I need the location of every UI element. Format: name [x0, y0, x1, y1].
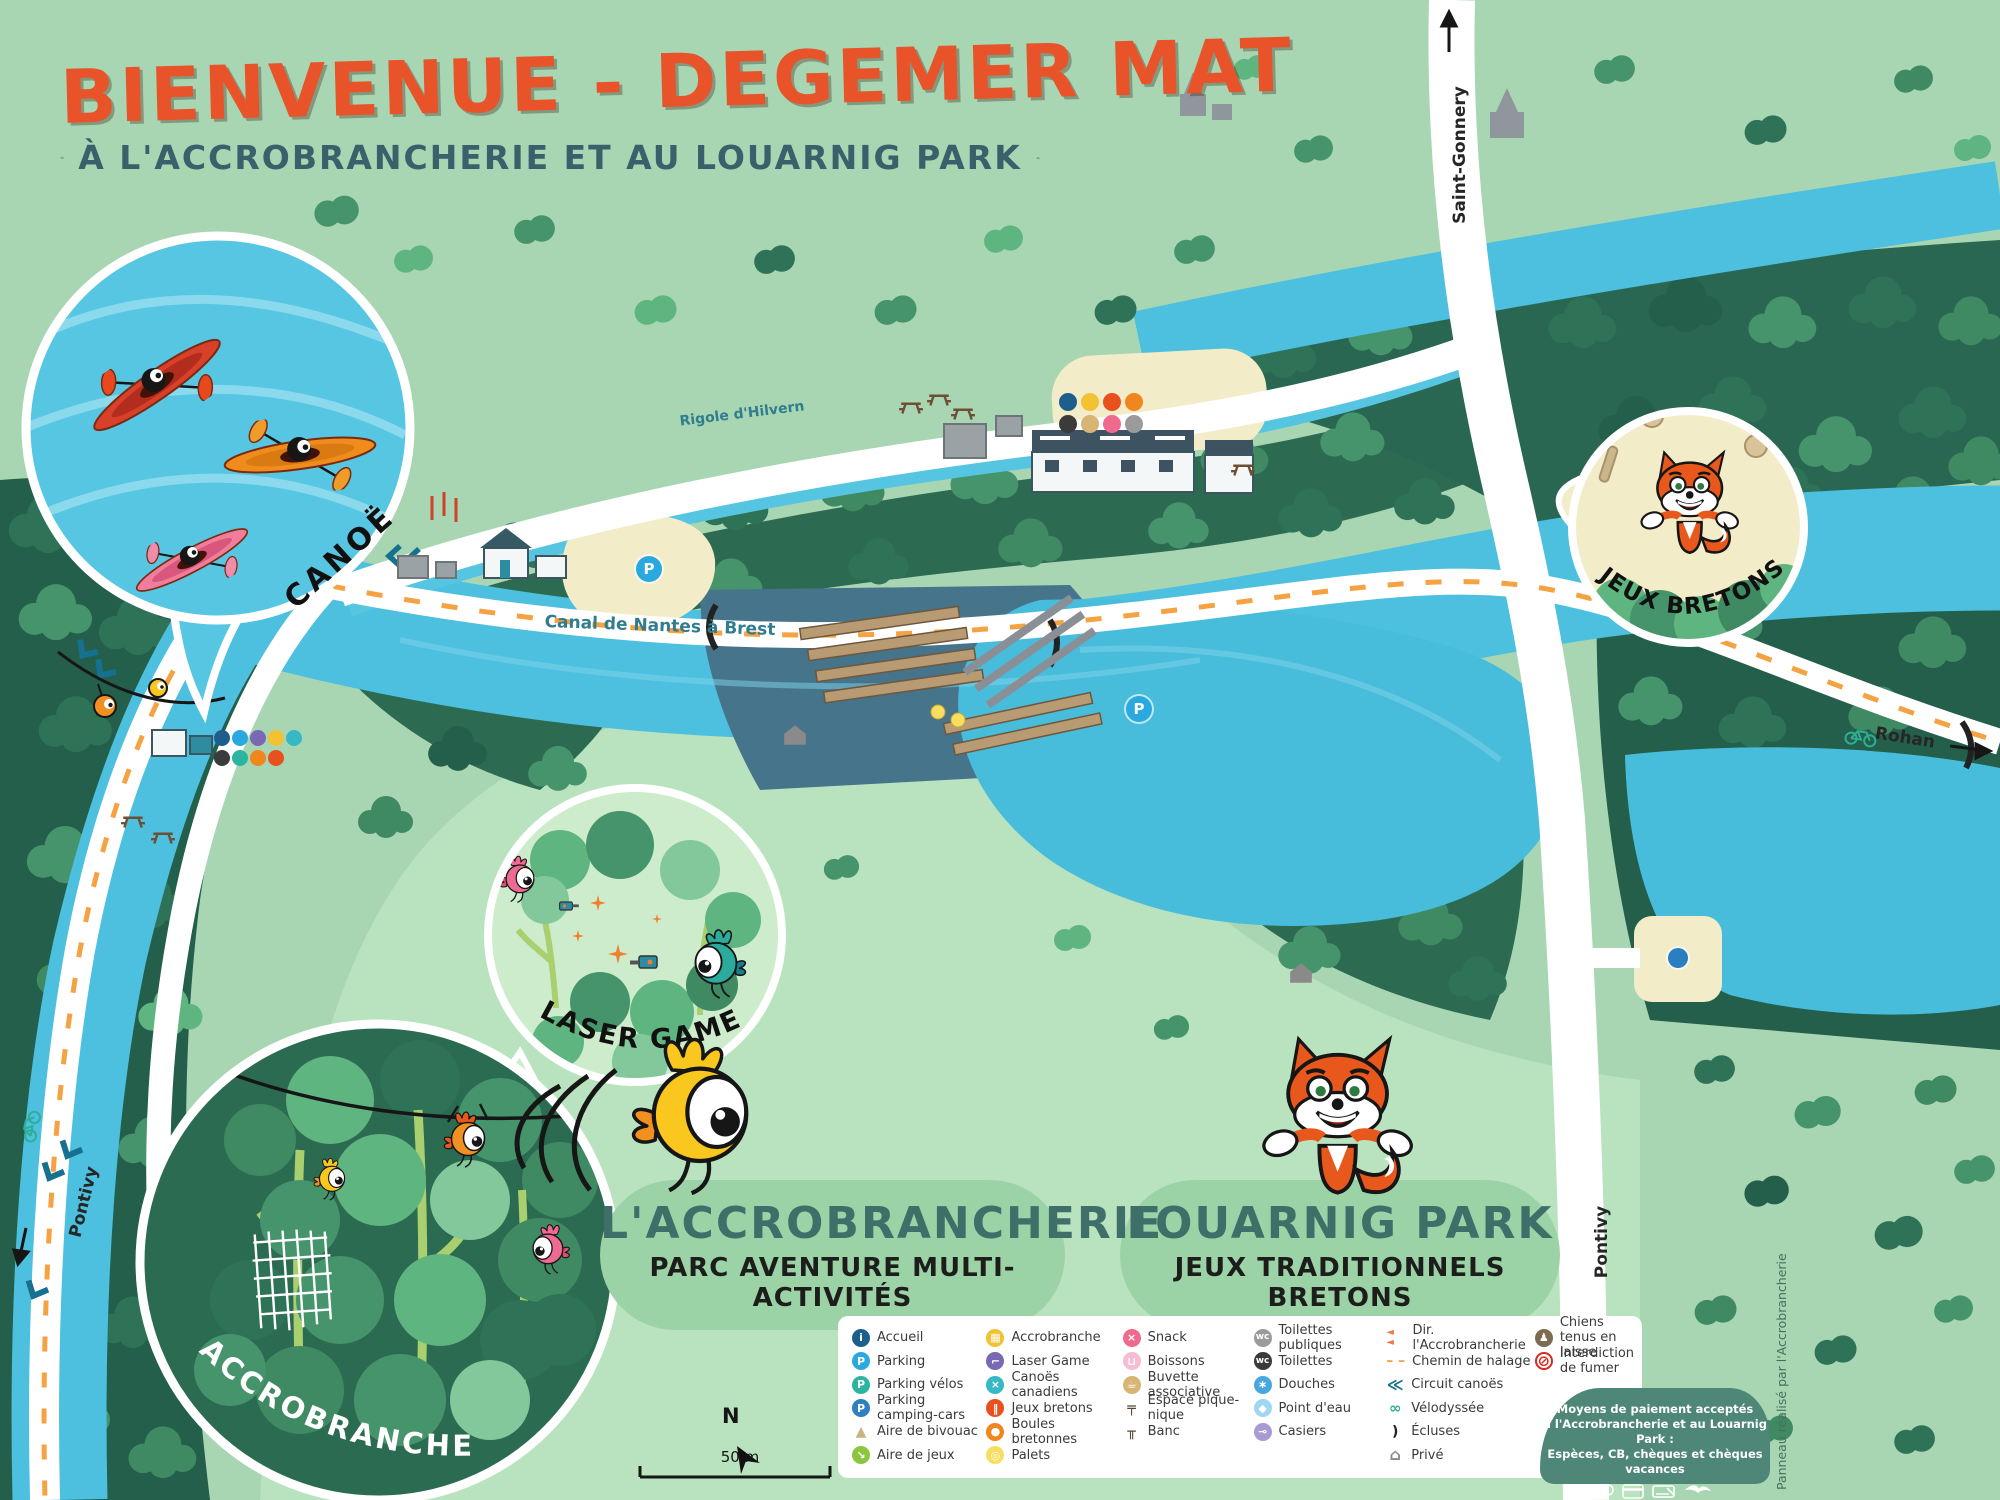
legend-item: ╤Espace pique-nique: [1123, 1397, 1254, 1421]
legend-label: Palets: [1011, 1448, 1050, 1463]
bike-parking-icon: P: [852, 1376, 870, 1394]
legend-item: PParking camping-cars: [852, 1397, 986, 1421]
towpath-dash-icon: – –: [1386, 1352, 1405, 1370]
legend-item: ◆Point d'eau: [1254, 1397, 1387, 1421]
legend-label: Accrobranche: [1011, 1330, 1100, 1345]
legend-item: ×Snack: [1123, 1326, 1254, 1350]
legend-column: ▦Accrobranche ⌐Laser Game ×Canoës canadi…: [986, 1326, 1122, 1470]
legend-item: ∗Douches: [1254, 1373, 1387, 1397]
dog-leash-icon: ♟: [1535, 1329, 1553, 1347]
parking-marker: P: [636, 556, 662, 582]
legend-item: ⊸Casiers: [1254, 1420, 1387, 1444]
payment-line: Espèces, CB, chèques et chèques vacances: [1540, 1447, 1770, 1477]
payment-line: Moyens de paiement acceptés: [1540, 1402, 1770, 1417]
road-label-saint-gonnery: Saint-Gonnery: [1450, 75, 1470, 235]
legend-item: ◎Palets: [986, 1444, 1122, 1468]
boules-icon: ●: [986, 1423, 1004, 1441]
playground-icon: ↘: [852, 1446, 870, 1464]
legend-item: wcToilettes: [1254, 1350, 1387, 1374]
legend-label: Parking: [877, 1354, 925, 1369]
wc-public-icon: wc: [1254, 1329, 1272, 1347]
legend-label: Privé: [1411, 1448, 1443, 1463]
drink-icon: ⊔: [1123, 1352, 1141, 1370]
bird-silhouette-icon: [1685, 1485, 1711, 1493]
area-tagline: JEUX TRADITIONNELS BRETONS: [1120, 1253, 1560, 1313]
paddles-icon: ×: [986, 1376, 1004, 1394]
key-icon: ⊸: [1254, 1423, 1272, 1441]
coins-icon: [1598, 1485, 1613, 1497]
leaf-sprig-icon: [1036, 147, 1040, 169]
leaf-sprig-icon: [60, 147, 64, 169]
legend-item: iAccueil: [852, 1326, 986, 1350]
slalom-gates: [432, 492, 456, 522]
legend-label: Circuit canoës: [1411, 1377, 1503, 1392]
legend-label: Écluses: [1411, 1424, 1460, 1439]
legend-column: wcToilettes publiques wcToilettes ∗Douch…: [1254, 1326, 1387, 1470]
legend-item: )Écluses: [1386, 1420, 1535, 1444]
area-tagline: PARC AVENTURE MULTI-ACTIVITÉS: [600, 1253, 1065, 1313]
payment-info-panel: Moyens de paiement acceptés à l'Accrobra…: [1540, 1388, 1770, 1484]
breton-games-icon: ‖: [986, 1399, 1004, 1417]
legend-item: ╥Banc: [1123, 1420, 1254, 1444]
legend-label: Toilettes: [1279, 1354, 1333, 1369]
legend-item: ▲Aire de bivouac: [852, 1420, 986, 1444]
scale-label: 50 m: [695, 1448, 785, 1466]
laser-gun-icon: ⌐: [986, 1352, 1004, 1370]
legend-item: ⊘Interdiction de fumer: [1535, 1350, 1634, 1374]
picnic-table-icon: ╤: [1123, 1399, 1141, 1417]
legend-label: Chemin de halage: [1412, 1354, 1530, 1369]
legend-label: Espace pique-nique: [1148, 1393, 1254, 1423]
payment-methods-icons: [1595, 1482, 1715, 1500]
legend-label: Boules bretonnes: [1011, 1417, 1122, 1447]
campervan-parking-icon: P: [852, 1399, 870, 1417]
cutlery-icon: ×: [1123, 1329, 1141, 1347]
legend-label: Vélodyssée: [1411, 1401, 1484, 1416]
parking-marker: P: [1126, 696, 1152, 722]
sign-subtitle-row: À L'ACCROBRANCHERIE ET AU LOUARNIG PARK: [60, 138, 1040, 177]
legend-column: iAccueil PParking PParking vélos PParkin…: [852, 1326, 986, 1470]
legend-label: Boissons: [1148, 1354, 1205, 1369]
legend-label: Canoës canadiens: [1011, 1370, 1122, 1400]
coffee-icon: ☕: [1123, 1376, 1141, 1394]
legend-column: ×Snack ⊔Boissons ☕Buvette associative ╤E…: [1123, 1326, 1254, 1470]
legend-label: Accueil: [877, 1330, 923, 1345]
area-name: L'ACCROBRANCHERIE: [600, 1198, 1065, 1249]
legend-label: Parking camping-cars: [877, 1393, 986, 1423]
info-point-marker: [1668, 948, 1688, 968]
legend-item: ◄ ◄Dir. l'Accrobrancherie: [1386, 1326, 1535, 1350]
palets-icon: ◎: [986, 1446, 1004, 1464]
legend-item: ∞Vélodyssée: [1386, 1397, 1535, 1421]
legend-label: Douches: [1279, 1377, 1335, 1392]
canoe-route-icon: ≪: [1386, 1376, 1404, 1394]
house-icon: ⌂: [1386, 1446, 1404, 1464]
water-drop-icon: ◆: [1254, 1399, 1272, 1417]
park-map-sign: LASER GAME ACCROBRANCHE JEUX BRETONS BIE…: [0, 0, 2000, 1500]
legend-label: Point d'eau: [1279, 1401, 1351, 1416]
legend-column: ◄ ◄Dir. l'Accrobrancherie – –Chemin de h…: [1386, 1326, 1535, 1470]
area-louarnig-park: LOUARNIG PARK JEUX TRADITIONNELS BRETONS: [1120, 1198, 1560, 1313]
lock-icon: ): [1386, 1423, 1404, 1441]
legend-panel: iAccueil PParking PParking vélos PParkin…: [838, 1316, 1642, 1478]
wc-icon: wc: [1254, 1352, 1272, 1370]
info-icon: i: [852, 1329, 870, 1347]
legend-item: ●Boules bretonnes: [986, 1420, 1122, 1444]
legend-item: – –Chemin de halage: [1386, 1350, 1535, 1374]
legend-label: Casiers: [1279, 1424, 1327, 1439]
legend-label: Banc: [1148, 1424, 1180, 1439]
tent-icon: ▲: [852, 1423, 870, 1441]
payment-line: à l'Accrobrancherie et au Louarnig Park …: [1540, 1417, 1770, 1447]
legend-label: Interdiction de fumer: [1560, 1346, 1634, 1376]
area-name: LOUARNIG PARK: [1120, 1198, 1560, 1249]
legend-item: wcToilettes publiques: [1254, 1326, 1387, 1350]
net-icon: ▦: [986, 1329, 1004, 1347]
legend-label: Aire de bivouac: [877, 1424, 978, 1439]
sign-subtitle: À L'ACCROBRANCHERIE ET AU LOUARNIG PARK: [78, 138, 1022, 177]
bike-icon: ∞: [1386, 1399, 1404, 1417]
no-smoking-icon: ⊘: [1535, 1352, 1553, 1370]
road-label-pontivy-bottom: Pontivy: [1592, 1172, 1612, 1312]
credit-text: Panneau réalisé par l'Accrobrancherie: [1774, 1310, 1789, 1490]
legend-item: ▦Accrobranche: [986, 1326, 1122, 1350]
north-label: N: [722, 1404, 740, 1428]
cheque-icon: [1653, 1486, 1674, 1497]
legend-label: Snack: [1148, 1330, 1187, 1345]
legend-label: Parking vélos: [877, 1377, 963, 1392]
legend-item: ⌂Privé: [1386, 1444, 1535, 1468]
legend-label: Toilettes publiques: [1279, 1323, 1387, 1353]
bench-icon: ╥: [1123, 1423, 1141, 1441]
direction-arrows-icon: ◄ ◄: [1386, 1329, 1405, 1347]
parking-icon: P: [852, 1352, 870, 1370]
legend-item: ≪Circuit canoës: [1386, 1373, 1535, 1397]
legend-label: Aire de jeux: [877, 1448, 955, 1463]
legend-item: ↘Aire de jeux: [852, 1444, 986, 1468]
credit-card-icon: [1623, 1485, 1643, 1498]
legend-item: ×Canoës canadiens: [986, 1373, 1122, 1397]
area-accrobrancherie: L'ACCROBRANCHERIE PARC AVENTURE MULTI-AC…: [600, 1198, 1065, 1313]
legend-item: PParking: [852, 1350, 986, 1374]
shower-icon: ∗: [1254, 1376, 1272, 1394]
legend-label: Laser Game: [1011, 1354, 1089, 1369]
legend-label: Dir. l'Accrobrancherie: [1412, 1323, 1534, 1353]
legend-label: Jeux bretons: [1011, 1401, 1092, 1416]
